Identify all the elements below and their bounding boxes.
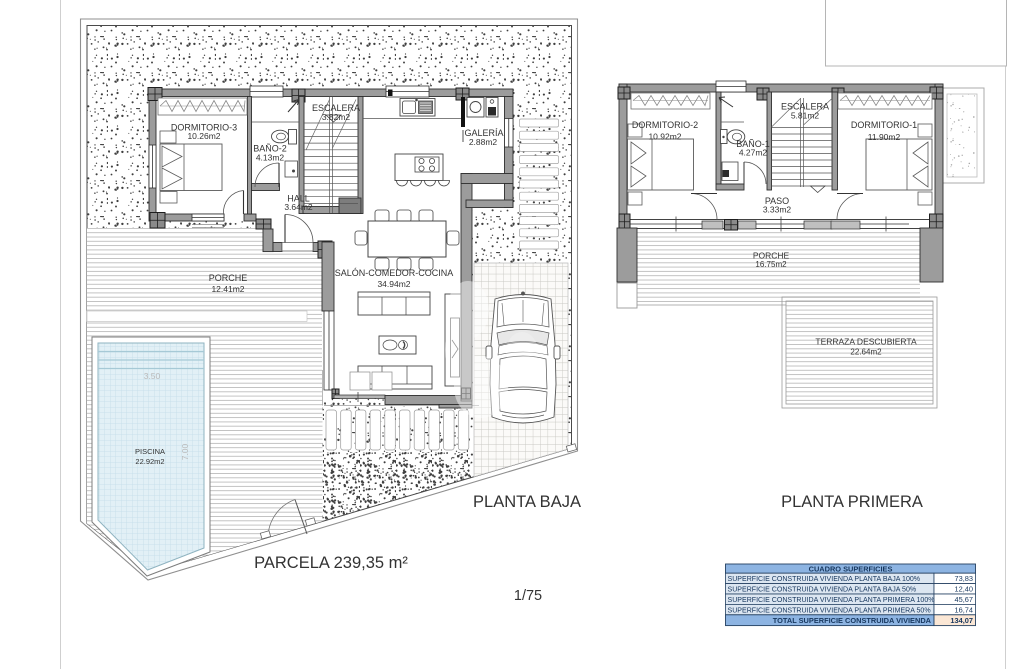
svg-text:PARCELA 239,35 m²: PARCELA 239,35 m² xyxy=(254,554,408,572)
svg-text:134,07: 134,07 xyxy=(950,616,973,625)
svg-text:11.90m2: 11.90m2 xyxy=(868,132,901,142)
svg-text:SUPERFICIE CONSTRUIDA VIVIENDA: SUPERFICIE CONSTRUIDA VIVIENDA PLANTA BA… xyxy=(728,587,917,594)
svg-text:PORCHE: PORCHE xyxy=(753,251,790,261)
svg-text:12.41m2: 12.41m2 xyxy=(211,284,244,294)
svg-text:16,74: 16,74 xyxy=(955,605,974,614)
svg-text:3.64m2: 3.64m2 xyxy=(284,202,313,212)
svg-text:12,40: 12,40 xyxy=(955,585,974,594)
svg-text:PORCHE: PORCHE xyxy=(209,273,248,283)
svg-text:1/75: 1/75 xyxy=(514,588,542,604)
svg-text:CUADRO SUPERFICIES: CUADRO SUPERFICIES xyxy=(809,565,893,574)
svg-text:DORMITORIO-2: DORMITORIO-2 xyxy=(632,120,698,130)
svg-text:5.81m2: 5.81m2 xyxy=(791,111,820,121)
svg-text:73,83: 73,83 xyxy=(955,574,974,583)
svg-text:2.88m2: 2.88m2 xyxy=(469,137,498,147)
svg-text:SUPERFICIE CONSTRUIDA VIVIENDA: SUPERFICIE CONSTRUIDA VIVIENDA PLANTA PR… xyxy=(728,597,936,604)
svg-text:SALÓN-COMEDOR-COCINA: SALÓN-COMEDOR-COCINA xyxy=(335,268,454,278)
svg-text:7.00: 7.00 xyxy=(180,443,190,460)
svg-text:16.75m2: 16.75m2 xyxy=(755,260,787,269)
svg-text:TERRAZA DESCUBIERTA: TERRAZA DESCUBIERTA xyxy=(815,337,917,347)
svg-text:TOTAL SUPERFICIE CONSTRUIDA VI: TOTAL SUPERFICIE CONSTRUIDA VIVIENDA xyxy=(773,616,932,625)
svg-text:PISCINA: PISCINA xyxy=(135,447,165,456)
svg-text:4.13m2: 4.13m2 xyxy=(256,153,285,163)
svg-text:22.92m2: 22.92m2 xyxy=(135,457,164,466)
svg-text:3.50: 3.50 xyxy=(144,371,161,381)
svg-text:10.92m2: 10.92m2 xyxy=(648,132,681,142)
svg-text:DORMITORIO-1: DORMITORIO-1 xyxy=(851,120,917,130)
svg-text:SUPERFICIE CONSTRUIDA VIVIENDA: SUPERFICIE CONSTRUIDA VIVIENDA PLANTA PR… xyxy=(728,607,932,614)
svg-text:10.26m2: 10.26m2 xyxy=(187,131,220,141)
svg-text:45,67: 45,67 xyxy=(955,595,974,604)
svg-text:PLANTA PRIMERA: PLANTA PRIMERA xyxy=(781,493,923,511)
svg-text:34.94m2: 34.94m2 xyxy=(377,279,410,289)
svg-text:22.64m2: 22.64m2 xyxy=(850,348,882,357)
svg-text:3.33m2: 3.33m2 xyxy=(763,205,792,215)
svg-text:PLANTA BAJA: PLANTA BAJA xyxy=(473,493,581,511)
svg-text:4.27m2: 4.27m2 xyxy=(739,148,768,158)
svg-text:3.82m2: 3.82m2 xyxy=(322,112,351,122)
svg-text:SUPERFICIE CONSTRUIDA VIVIENDA: SUPERFICIE CONSTRUIDA VIVIENDA PLANTA BA… xyxy=(728,576,921,583)
